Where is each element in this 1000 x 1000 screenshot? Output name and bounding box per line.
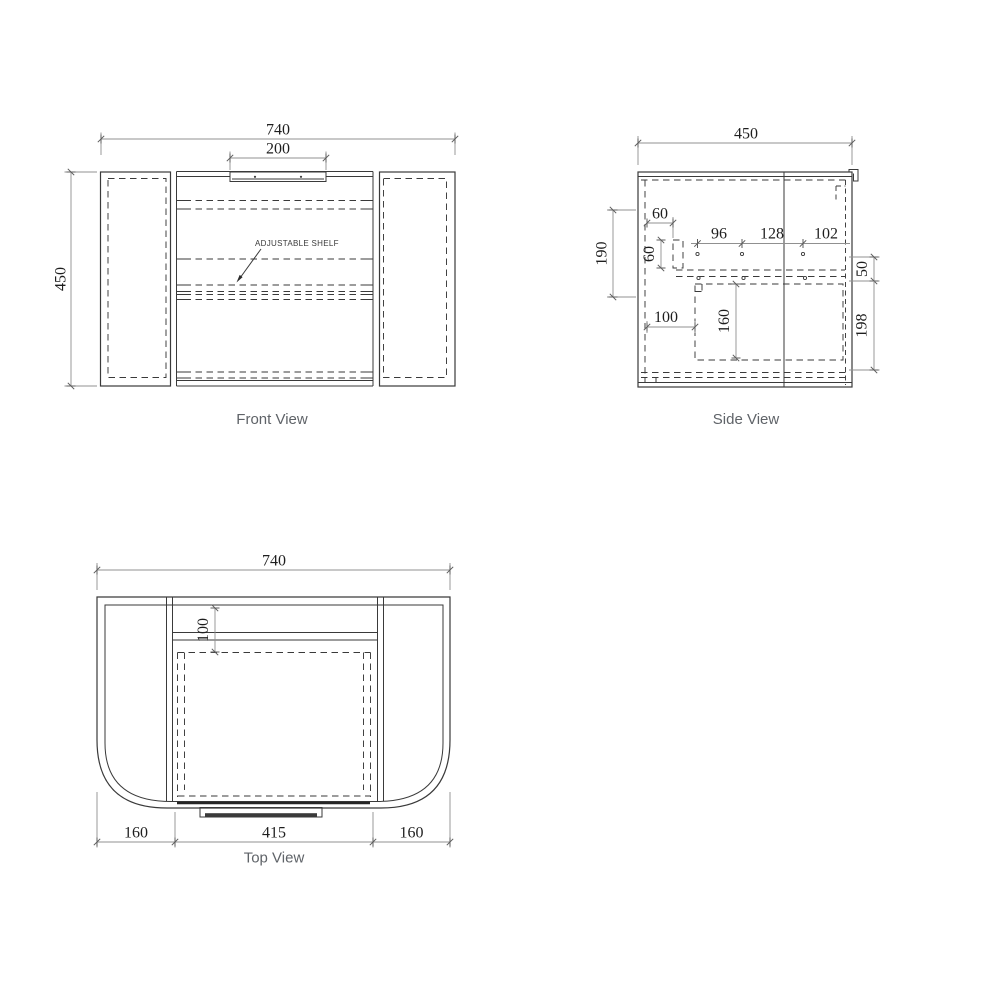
drawing-canvas: ADJUSTABLE SHELF 740 200 450 Front View xyxy=(0,0,1000,1000)
bracket-hidden xyxy=(673,240,683,268)
top-dim-overall-width: 740 xyxy=(262,553,286,570)
drill-holes xyxy=(696,252,807,279)
technical-drawing: ADJUSTABLE SHELF 740 200 450 Front View xyxy=(0,0,1000,1000)
top-view: 740 100 160 415 160 Top View xyxy=(94,553,453,867)
front-view-dimensions: 740 200 450 xyxy=(53,122,459,390)
side-dim-lower-height: 198 xyxy=(854,314,871,338)
front-view-hidden-lines xyxy=(108,179,447,379)
top-view-outline xyxy=(97,597,450,817)
top-view-hidden-lines xyxy=(178,653,371,798)
side-dim-front-gap: 50 xyxy=(854,261,871,277)
leader-line xyxy=(240,249,261,278)
top-dim-right-wing: 160 xyxy=(400,825,424,842)
front-dim-handle-width: 200 xyxy=(266,141,290,158)
side-view-caption: Side View xyxy=(713,411,780,428)
side-dim-hole-pitch-1: 96 xyxy=(711,226,727,243)
top-handle xyxy=(200,808,322,818)
side-dim-hole-pitch-2: 128 xyxy=(760,226,784,243)
side-view-dimensions: 450 190 60 60 96 128 102 100 160 50 xyxy=(594,126,880,374)
top-dim-center-width: 415 xyxy=(262,825,286,842)
side-dim-left-height: 190 xyxy=(594,242,611,266)
top-dim-left-wing: 160 xyxy=(124,825,148,842)
side-dim-drawer-height: 160 xyxy=(716,309,733,333)
side-dim-overall-depth: 450 xyxy=(734,126,758,143)
side-view-hidden-lines xyxy=(641,180,849,385)
front-dim-overall-width: 740 xyxy=(266,122,290,139)
front-view-caption: Front View xyxy=(236,411,308,428)
adjustable-shelf-label: ADJUSTABLE SHELF xyxy=(255,239,339,248)
door-curve-hidden-edge xyxy=(836,180,846,385)
front-view-outline xyxy=(101,172,456,387)
front-view-annotation: ADJUSTABLE SHELF xyxy=(237,239,339,283)
side-dim-bracket-height: 60 xyxy=(641,246,658,262)
side-dim-bracket-offset: 60 xyxy=(652,206,668,223)
side-dim-hole-pitch-3: 102 xyxy=(814,226,838,243)
side-view-outline xyxy=(638,170,858,388)
side-dim-drawer-inset: 100 xyxy=(654,309,678,326)
side-handle-profile xyxy=(849,170,858,182)
top-dim-back-depth: 100 xyxy=(195,618,212,642)
front-handle xyxy=(230,172,326,182)
front-dim-overall-height: 450 xyxy=(53,267,70,291)
top-view-caption: Top View xyxy=(244,850,305,867)
side-view: 450 190 60 60 96 128 102 100 160 50 xyxy=(594,126,880,429)
front-view: ADJUSTABLE SHELF 740 200 450 Front View xyxy=(53,122,459,429)
